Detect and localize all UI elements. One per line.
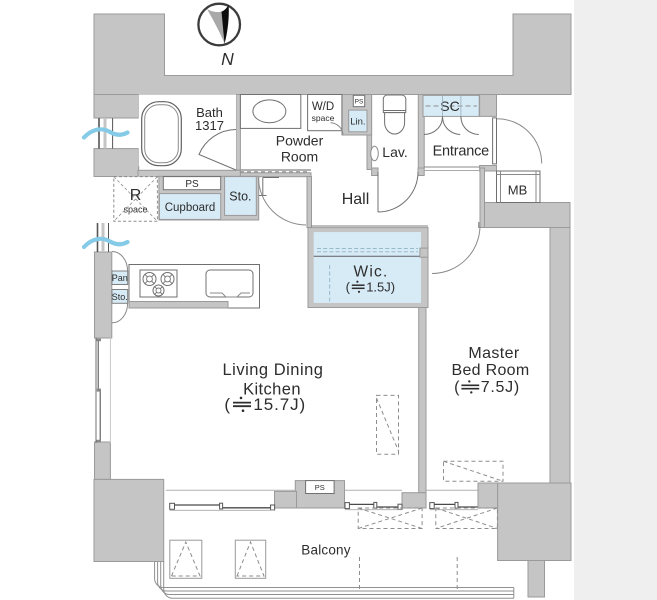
svg-text:R: R [130,187,142,204]
svg-text:(: ( [454,379,460,396]
svg-text:Lin.: Lin. [350,117,365,128]
svg-text:space: space [123,205,147,215]
svg-text:1317: 1317 [195,118,224,133]
svg-text:15.7J): 15.7J) [253,395,306,414]
svg-text:SC: SC [440,98,459,114]
svg-text:Sto.: Sto. [112,292,128,302]
svg-text:PS: PS [355,99,364,106]
svg-text:W/D: W/D [312,101,334,113]
svg-text:7.5J): 7.5J) [481,379,520,396]
svg-text:Lav.: Lav. [382,144,407,160]
svg-text:Living Dining: Living Dining [223,361,324,379]
svg-text:PS: PS [185,179,199,190]
svg-text:Bed Room: Bed Room [452,362,530,379]
svg-text:MB: MB [508,182,528,197]
svg-text:1.5J): 1.5J) [366,280,395,295]
svg-text:PS: PS [315,483,325,492]
svg-text:Powder: Powder [276,133,324,149]
svg-text:N: N [221,49,234,69]
svg-text:Pan: Pan [112,273,128,283]
svg-text:(: ( [346,280,351,295]
svg-text:Wic.: Wic. [354,264,389,281]
svg-text:Room: Room [281,149,318,165]
svg-text:(: ( [224,395,230,414]
svg-text:Balcony: Balcony [301,543,350,558]
svg-text:Entrance: Entrance [433,144,490,160]
svg-text:Cupboard: Cupboard [165,202,216,214]
svg-text:space: space [312,113,335,123]
svg-text:Hall: Hall [342,191,370,208]
svg-text:Master: Master [468,345,520,362]
svg-text:Sto.: Sto. [229,190,251,204]
